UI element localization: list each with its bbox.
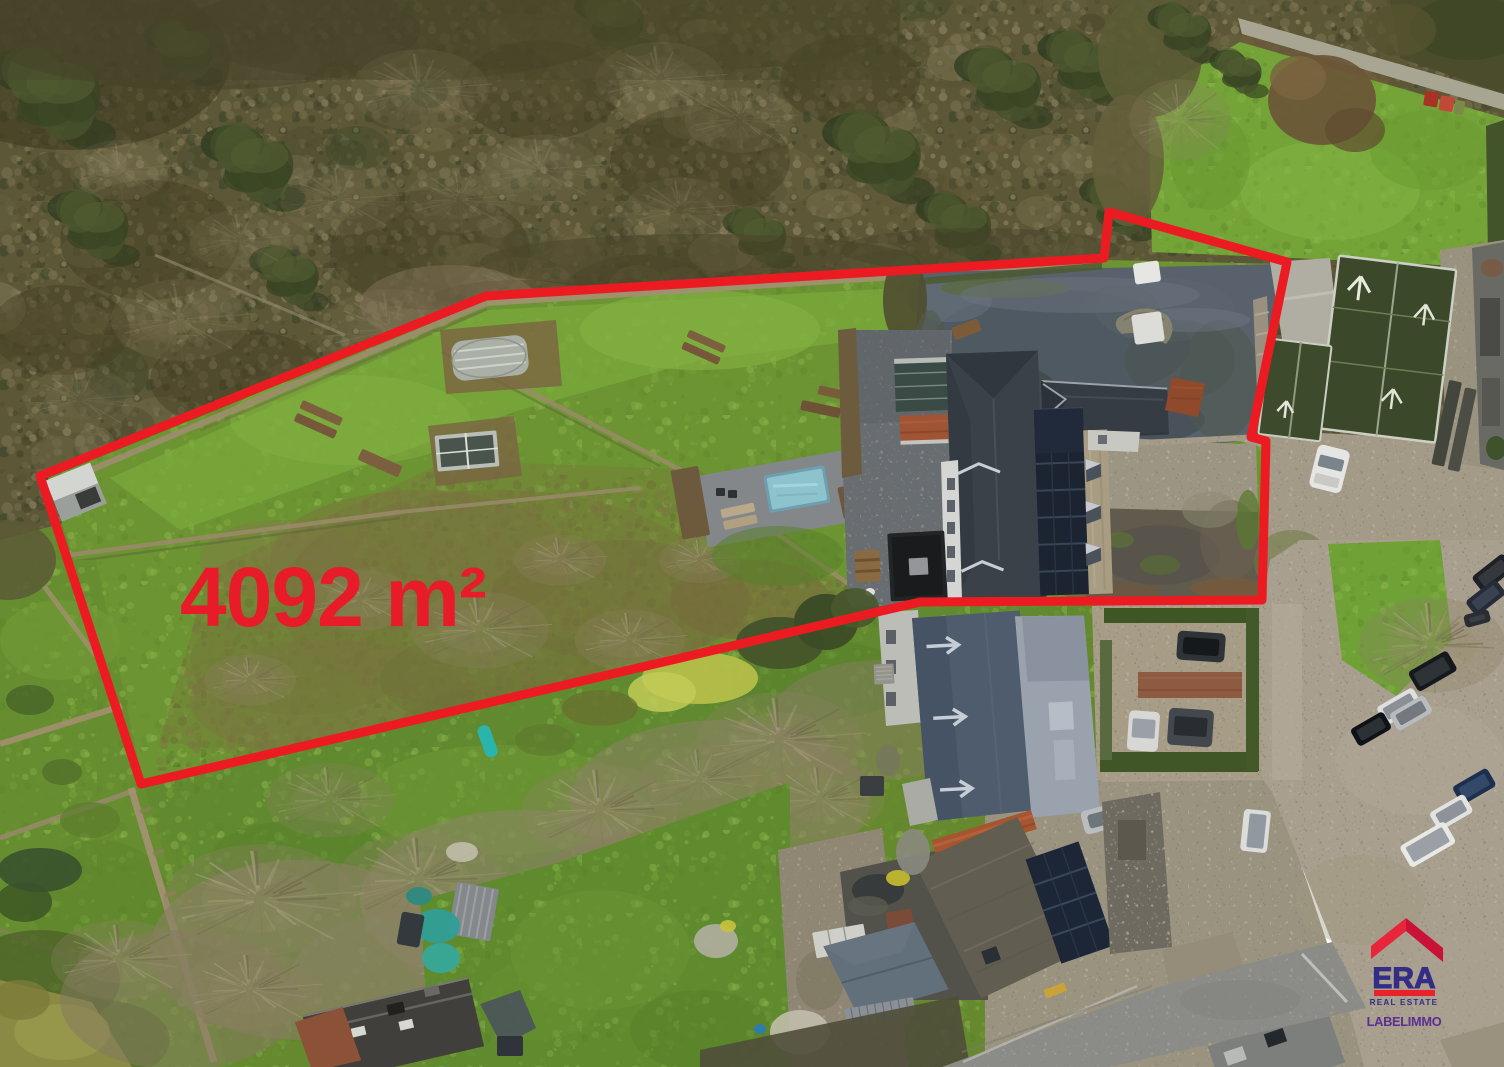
svg-text:REAL ESTATE: REAL ESTATE (1370, 998, 1439, 1007)
svg-text:4092 m²: 4092 m² (180, 550, 486, 644)
svg-text:LABELIMMO: LABELIMMO (1367, 1014, 1442, 1029)
